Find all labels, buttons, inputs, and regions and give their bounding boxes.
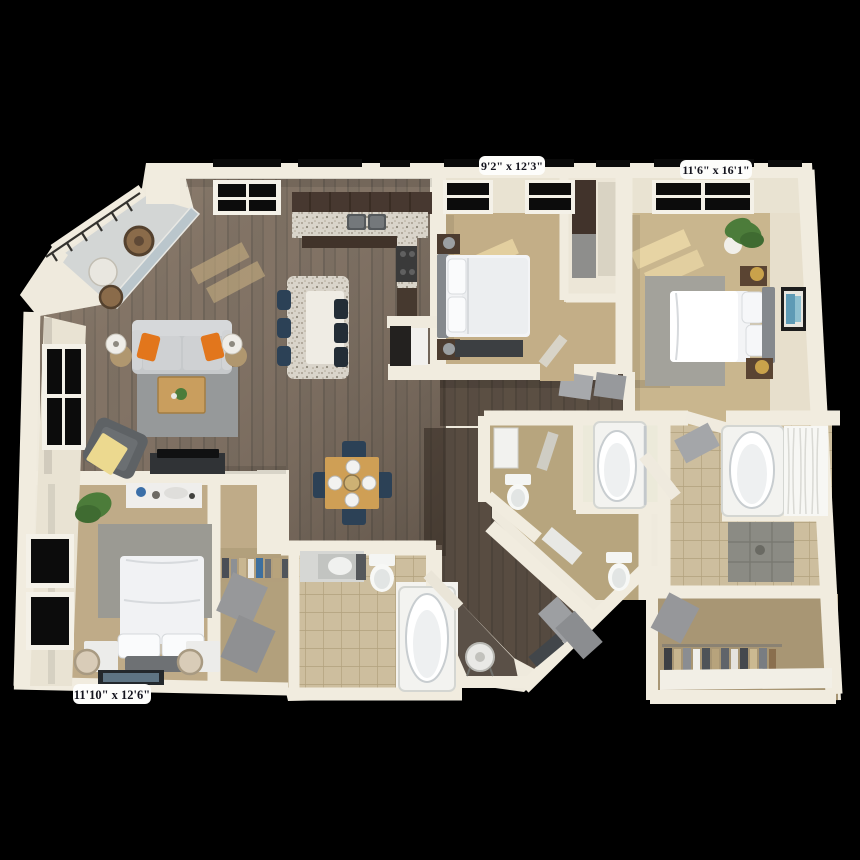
svg-text:11'6" x 16'1": 11'6" x 16'1" (682, 163, 749, 177)
svg-text:11'10" x 12'6": 11'10" x 12'6" (74, 688, 150, 702)
svg-text:9'2" x 12'3": 9'2" x 12'3" (481, 159, 543, 173)
